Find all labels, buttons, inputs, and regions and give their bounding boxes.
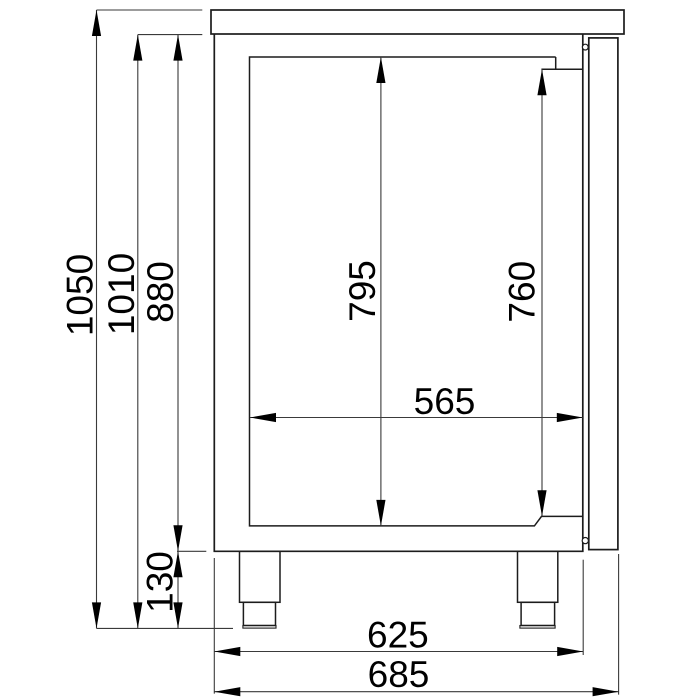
svg-text:130: 130	[140, 551, 181, 613]
svg-text:565: 565	[414, 381, 476, 422]
svg-text:880: 880	[140, 261, 181, 323]
svg-text:1010: 1010	[101, 253, 142, 335]
svg-text:795: 795	[342, 260, 383, 322]
svg-text:1050: 1050	[60, 254, 101, 336]
svg-text:625: 625	[367, 615, 429, 656]
svg-text:685: 685	[368, 654, 430, 695]
svg-text:760: 760	[502, 261, 543, 323]
